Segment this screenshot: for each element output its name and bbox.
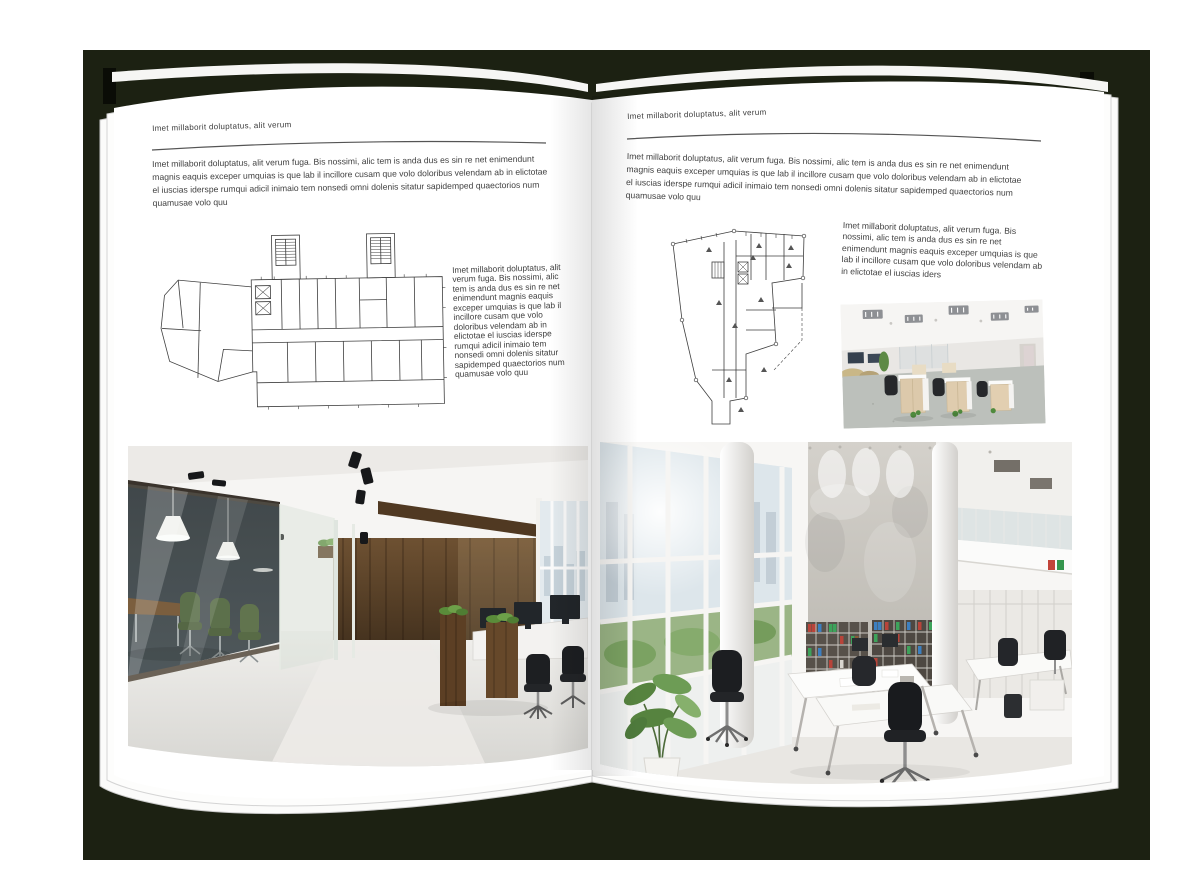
floor-plan-drawing-right xyxy=(646,220,824,428)
office-atrium-scene xyxy=(600,442,1072,789)
left-plan-caption: Imet millaborit doluptatus, alit verum f… xyxy=(452,263,577,380)
left-photo-office-loft xyxy=(128,446,588,770)
right-floor-plan xyxy=(646,220,824,428)
left-page-intro: Imet millaborit doluptatus, alit verum f… xyxy=(152,152,553,209)
right-plan-caption: Imet millaborit doluptatus, alit verum f… xyxy=(841,220,1045,284)
left-header-rule xyxy=(150,136,550,154)
right-photo-office-openspace xyxy=(840,299,1045,428)
office-openspace-scene xyxy=(840,299,1045,428)
floor-plan-drawing-left xyxy=(154,227,449,420)
office-loft-scene xyxy=(128,446,588,770)
left-floor-plan xyxy=(154,227,449,420)
right-header-rule xyxy=(625,126,1045,148)
right-photo-office-atrium xyxy=(600,442,1072,789)
magazine-mockup: Imet millaborit doluptatus, alit verum I… xyxy=(0,0,1200,891)
